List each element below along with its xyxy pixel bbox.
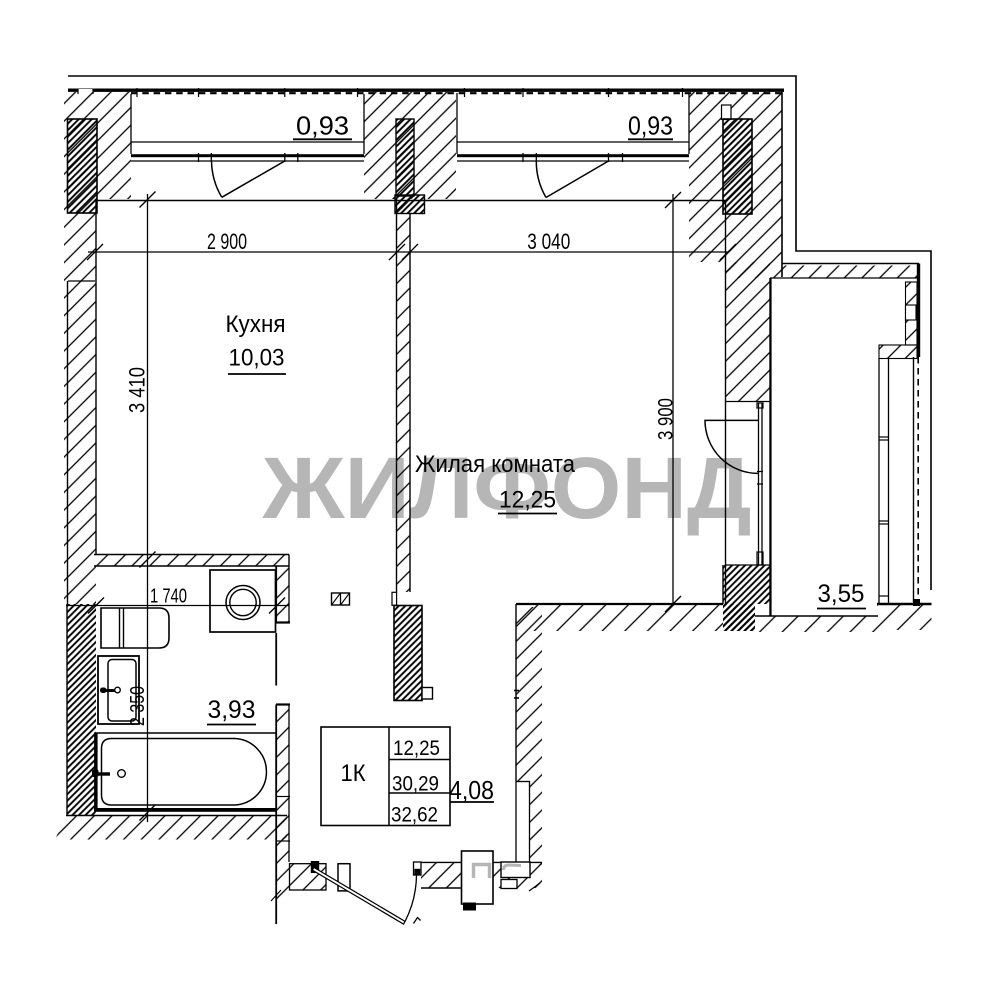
svg-text:4,08: 4,08 (449, 775, 494, 805)
svg-text:3,93: 3,93 (208, 696, 256, 724)
svg-text:3,55: 3,55 (818, 580, 865, 608)
svg-text:Жилая комната: Жилая комната (415, 451, 576, 478)
svg-text:12,25: 12,25 (393, 737, 440, 760)
svg-text:32,62: 32,62 (391, 804, 438, 827)
svg-text:2 350: 2 350 (127, 686, 149, 726)
svg-text:0,93: 0,93 (628, 111, 673, 141)
svg-text:1К: 1К (341, 760, 366, 787)
svg-text:1 740: 1 740 (150, 586, 187, 608)
svg-text:10,03: 10,03 (229, 345, 285, 372)
svg-text:2 900: 2 900 (207, 229, 247, 254)
svg-text:30,29: 30,29 (392, 773, 439, 796)
svg-text:3 410: 3 410 (125, 367, 150, 413)
svg-text:0,93: 0,93 (296, 111, 349, 141)
svg-text:3 900: 3 900 (655, 398, 678, 440)
svg-text:12,25: 12,25 (499, 487, 556, 514)
svg-text:3 040: 3 040 (527, 229, 570, 254)
svg-text:Кухня: Кухня (226, 311, 286, 338)
